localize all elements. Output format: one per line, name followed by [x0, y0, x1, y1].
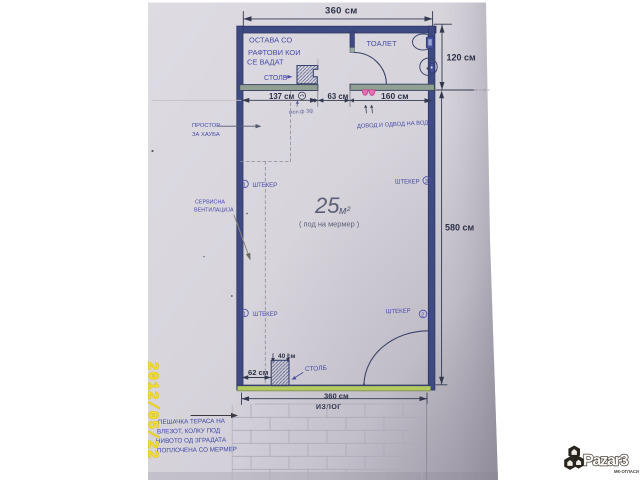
svg-text:360 см: 360 см: [325, 6, 358, 17]
svg-text:СЕРВИСНА: СЕРВИСНА: [195, 200, 225, 206]
svg-text:СЕ ВАДАТ: СЕ ВАДАТ: [247, 58, 284, 67]
svg-text:СТОЛБ: СТОЛБ: [264, 75, 288, 82]
svg-text:ИЗЛОГ: ИЗЛОГ: [316, 404, 342, 411]
svg-text:СТОЛБ: СТОЛБ: [305, 365, 327, 373]
svg-text:40 см: 40 см: [278, 353, 296, 360]
svg-text:Pazar3: Pazar3: [583, 453, 629, 470]
svg-text:ОСТАВА СО: ОСТАВА СО: [249, 36, 292, 45]
svg-text:63 см: 63 см: [328, 92, 349, 101]
svg-text:25: 25: [314, 193, 340, 218]
svg-text:ПОПЛОЧЕНА СО МЕРМЕР: ПОПЛОЧЕНА СО МЕРМЕР: [157, 446, 237, 454]
svg-text:2012/05/22: 2012/05/22: [144, 362, 161, 460]
svg-text:ВЕНТИЛАЦИЈА: ВЕНТИЛАЦИЈА: [194, 208, 234, 214]
svg-text:160 см: 160 см: [381, 91, 409, 101]
svg-text:3: 3: [425, 179, 428, 185]
svg-text:ТОАЛЕТ: ТОАЛЕТ: [367, 39, 398, 48]
svg-text:1: 1: [243, 312, 246, 318]
svg-text:1: 1: [243, 183, 246, 189]
svg-text:360 см: 360 см: [324, 391, 349, 400]
svg-text:ПРОСТОР: ПРОСТОР: [192, 123, 220, 129]
svg-text:ШТЕКЕР: ШТЕКЕР: [253, 312, 278, 318]
svg-text:РАФТОВИ КОИ: РАФТОВИ КОИ: [248, 48, 301, 57]
svg-text:ПЕШАЧКА ТЕРАСА НА: ПЕШАЧКА ТЕРАСА НА: [158, 418, 226, 426]
svg-text:м²: м²: [339, 205, 351, 217]
svg-text:ШТЕКЕР: ШТЕКЕР: [395, 179, 420, 185]
svg-text:120 см: 120 см: [447, 53, 477, 63]
svg-text:ШТЕКЕР: ШТЕКЕР: [253, 183, 278, 189]
svg-text:ВЛЕЗОТ, КОЛКУ ПОД: ВЛЕЗОТ, КОЛКУ ПОД: [157, 427, 221, 435]
svg-text:62 см: 62 см: [248, 368, 269, 377]
svg-text:МК-ОГЛАСИ: МК-ОГЛАСИ: [614, 469, 639, 474]
svg-text:ШТЕКЕР: ШТЕКЕР: [386, 308, 411, 315]
svg-text:( под на мермер ): ( под на мермер ): [299, 220, 359, 229]
svg-text:НИВОТО ОД ЗГРАДАТА: НИВОТО ОД ЗГРАДАТА: [156, 437, 227, 445]
svg-text:ЗА ХАУБА: ЗА ХАУБА: [192, 132, 220, 138]
svg-text:2: 2: [421, 313, 424, 319]
svg-text:580 см: 580 см: [445, 223, 475, 233]
